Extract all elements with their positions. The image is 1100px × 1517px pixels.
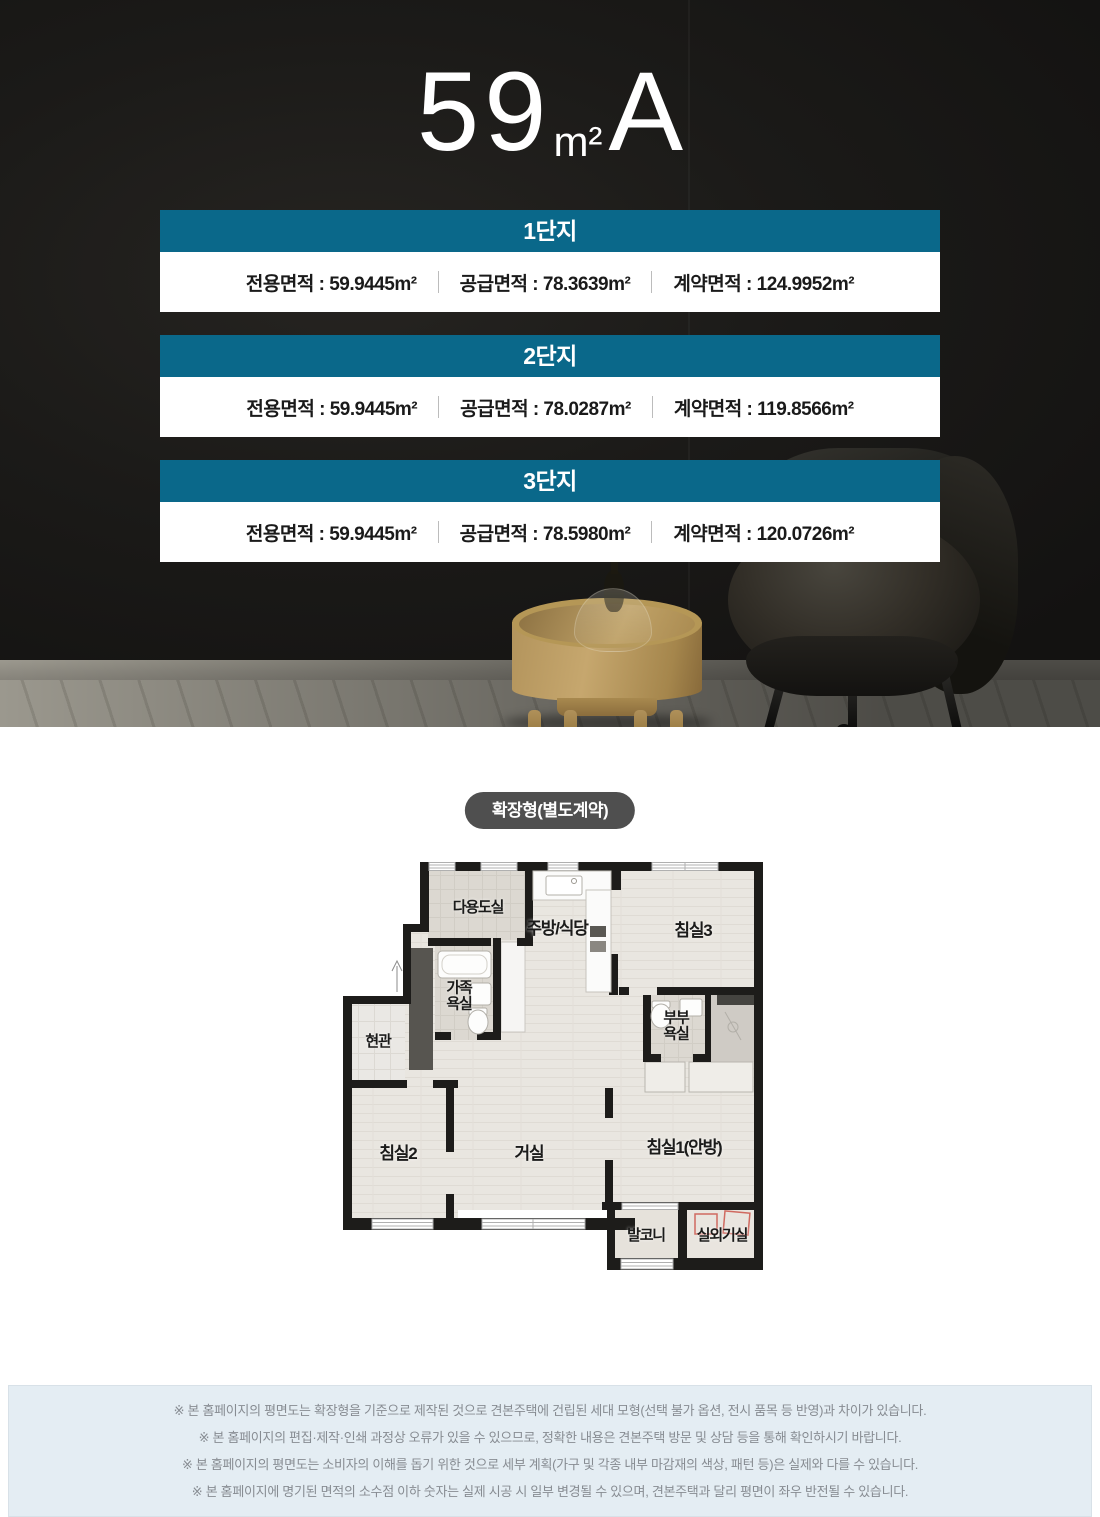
room-label-living: 거실 xyxy=(515,1145,544,1163)
unit-info-page: 59 m² A 1단지 전용면적 : 59.9445m² 공급면적 : 78.3… xyxy=(0,0,1100,1517)
page-title: 59 m² A xyxy=(0,56,1100,168)
disclaimer-line: ※ 본 홈페이지에 명기된 면적의 소수점 이하 숫자는 실제 시공 시 일부 … xyxy=(9,1478,1091,1505)
room-label-bedroom2: 침실2 xyxy=(379,1145,416,1163)
spec-divider xyxy=(652,396,653,418)
room-label-master-bath: 부부욕실 xyxy=(658,1010,694,1042)
expansion-badge: 확장형(별도계약) xyxy=(465,792,635,829)
spec-item: 계약면적 : 120.0726m² xyxy=(673,519,854,546)
spec-item: 전용면적 : 59.9445m² xyxy=(246,394,417,421)
floor-plan: 다용도실 주방/식당 침실3 가족욕실 현관 부부욕실 침실2 거실 침실1(안… xyxy=(343,862,763,1272)
room-label-bedroom3: 침실3 xyxy=(674,922,711,940)
spec-item: 전용면적 : 59.9445m² xyxy=(246,519,417,546)
room-label-utility: 다용도실 xyxy=(453,900,503,916)
complex-card-header: 3단지 xyxy=(160,460,940,502)
disclaimer-line: ※ 본 홈페이지의 평면도는 확장형을 기준으로 제작된 것으로 견본주택에 건… xyxy=(9,1397,1091,1424)
room-label-kitchen: 주방/식당 xyxy=(526,920,587,938)
title-type: A xyxy=(608,56,683,168)
complex-card-header: 2단지 xyxy=(160,335,940,377)
spec-divider xyxy=(651,271,652,293)
room-label-balcony: 발코니 xyxy=(627,1228,665,1244)
spec-divider xyxy=(438,271,439,293)
room-label-entrance: 현관 xyxy=(365,1034,390,1050)
complex-card-specs: 전용면적 : 59.9445m² 공급면적 : 78.3639m² 계약면적 :… xyxy=(160,252,940,312)
title-unit: m² xyxy=(553,121,602,163)
spec-item: 공급면적 : 78.5980m² xyxy=(460,519,631,546)
spec-divider xyxy=(438,521,439,543)
spec-item: 공급면적 : 78.3639m² xyxy=(460,269,631,296)
hero-photo: 59 m² A 1단지 전용면적 : 59.9445m² 공급면적 : 78.3… xyxy=(0,0,1100,727)
spec-divider xyxy=(651,521,652,543)
complex-card-2: 2단지 전용면적 : 59.9445m² 공급면적 : 78.0287m² 계약… xyxy=(160,335,940,437)
room-label-bedroom1: 침실1(안방) xyxy=(647,1139,722,1157)
entry-arrow xyxy=(392,961,402,992)
spec-item: 계약면적 : 124.9952m² xyxy=(673,269,854,296)
disclaimer-panel: ※ 본 홈페이지의 평면도는 확장형을 기준으로 제작된 것으로 견본주택에 건… xyxy=(8,1385,1092,1517)
spec-item: 전용면적 : 59.9445m² xyxy=(246,269,417,296)
complex-card-specs: 전용면적 : 59.9445m² 공급면적 : 78.5980m² 계약면적 :… xyxy=(160,502,940,562)
room-label-ac-room: 실외기실 xyxy=(697,1228,747,1244)
complex-card-specs: 전용면적 : 59.9445m² 공급면적 : 78.0287m² 계약면적 :… xyxy=(160,377,940,437)
disclaimer-line: ※ 본 홈페이지의 평면도는 소비자의 이해를 돕기 위한 것으로 세부 계획(… xyxy=(9,1451,1091,1478)
spec-item: 계약면적 : 119.8566m² xyxy=(674,394,854,421)
side-table xyxy=(512,598,702,727)
spec-item: 공급면적 : 78.0287m² xyxy=(460,394,631,421)
complex-card-1: 1단지 전용면적 : 59.9445m² 공급면적 : 78.3639m² 계약… xyxy=(160,210,940,312)
title-number: 59 xyxy=(417,56,552,168)
complex-card-header: 1단지 xyxy=(160,210,940,252)
spec-divider xyxy=(438,396,439,418)
complex-card-3: 3단지 전용면적 : 59.9445m² 공급면적 : 78.5980m² 계약… xyxy=(160,460,940,562)
room-label-family-bath: 가족욕실 xyxy=(441,980,477,1012)
disclaimer-line: ※ 본 홈페이지의 편집·제작·인쇄 과정상 오류가 있을 수 있으므로, 정확… xyxy=(9,1424,1091,1451)
